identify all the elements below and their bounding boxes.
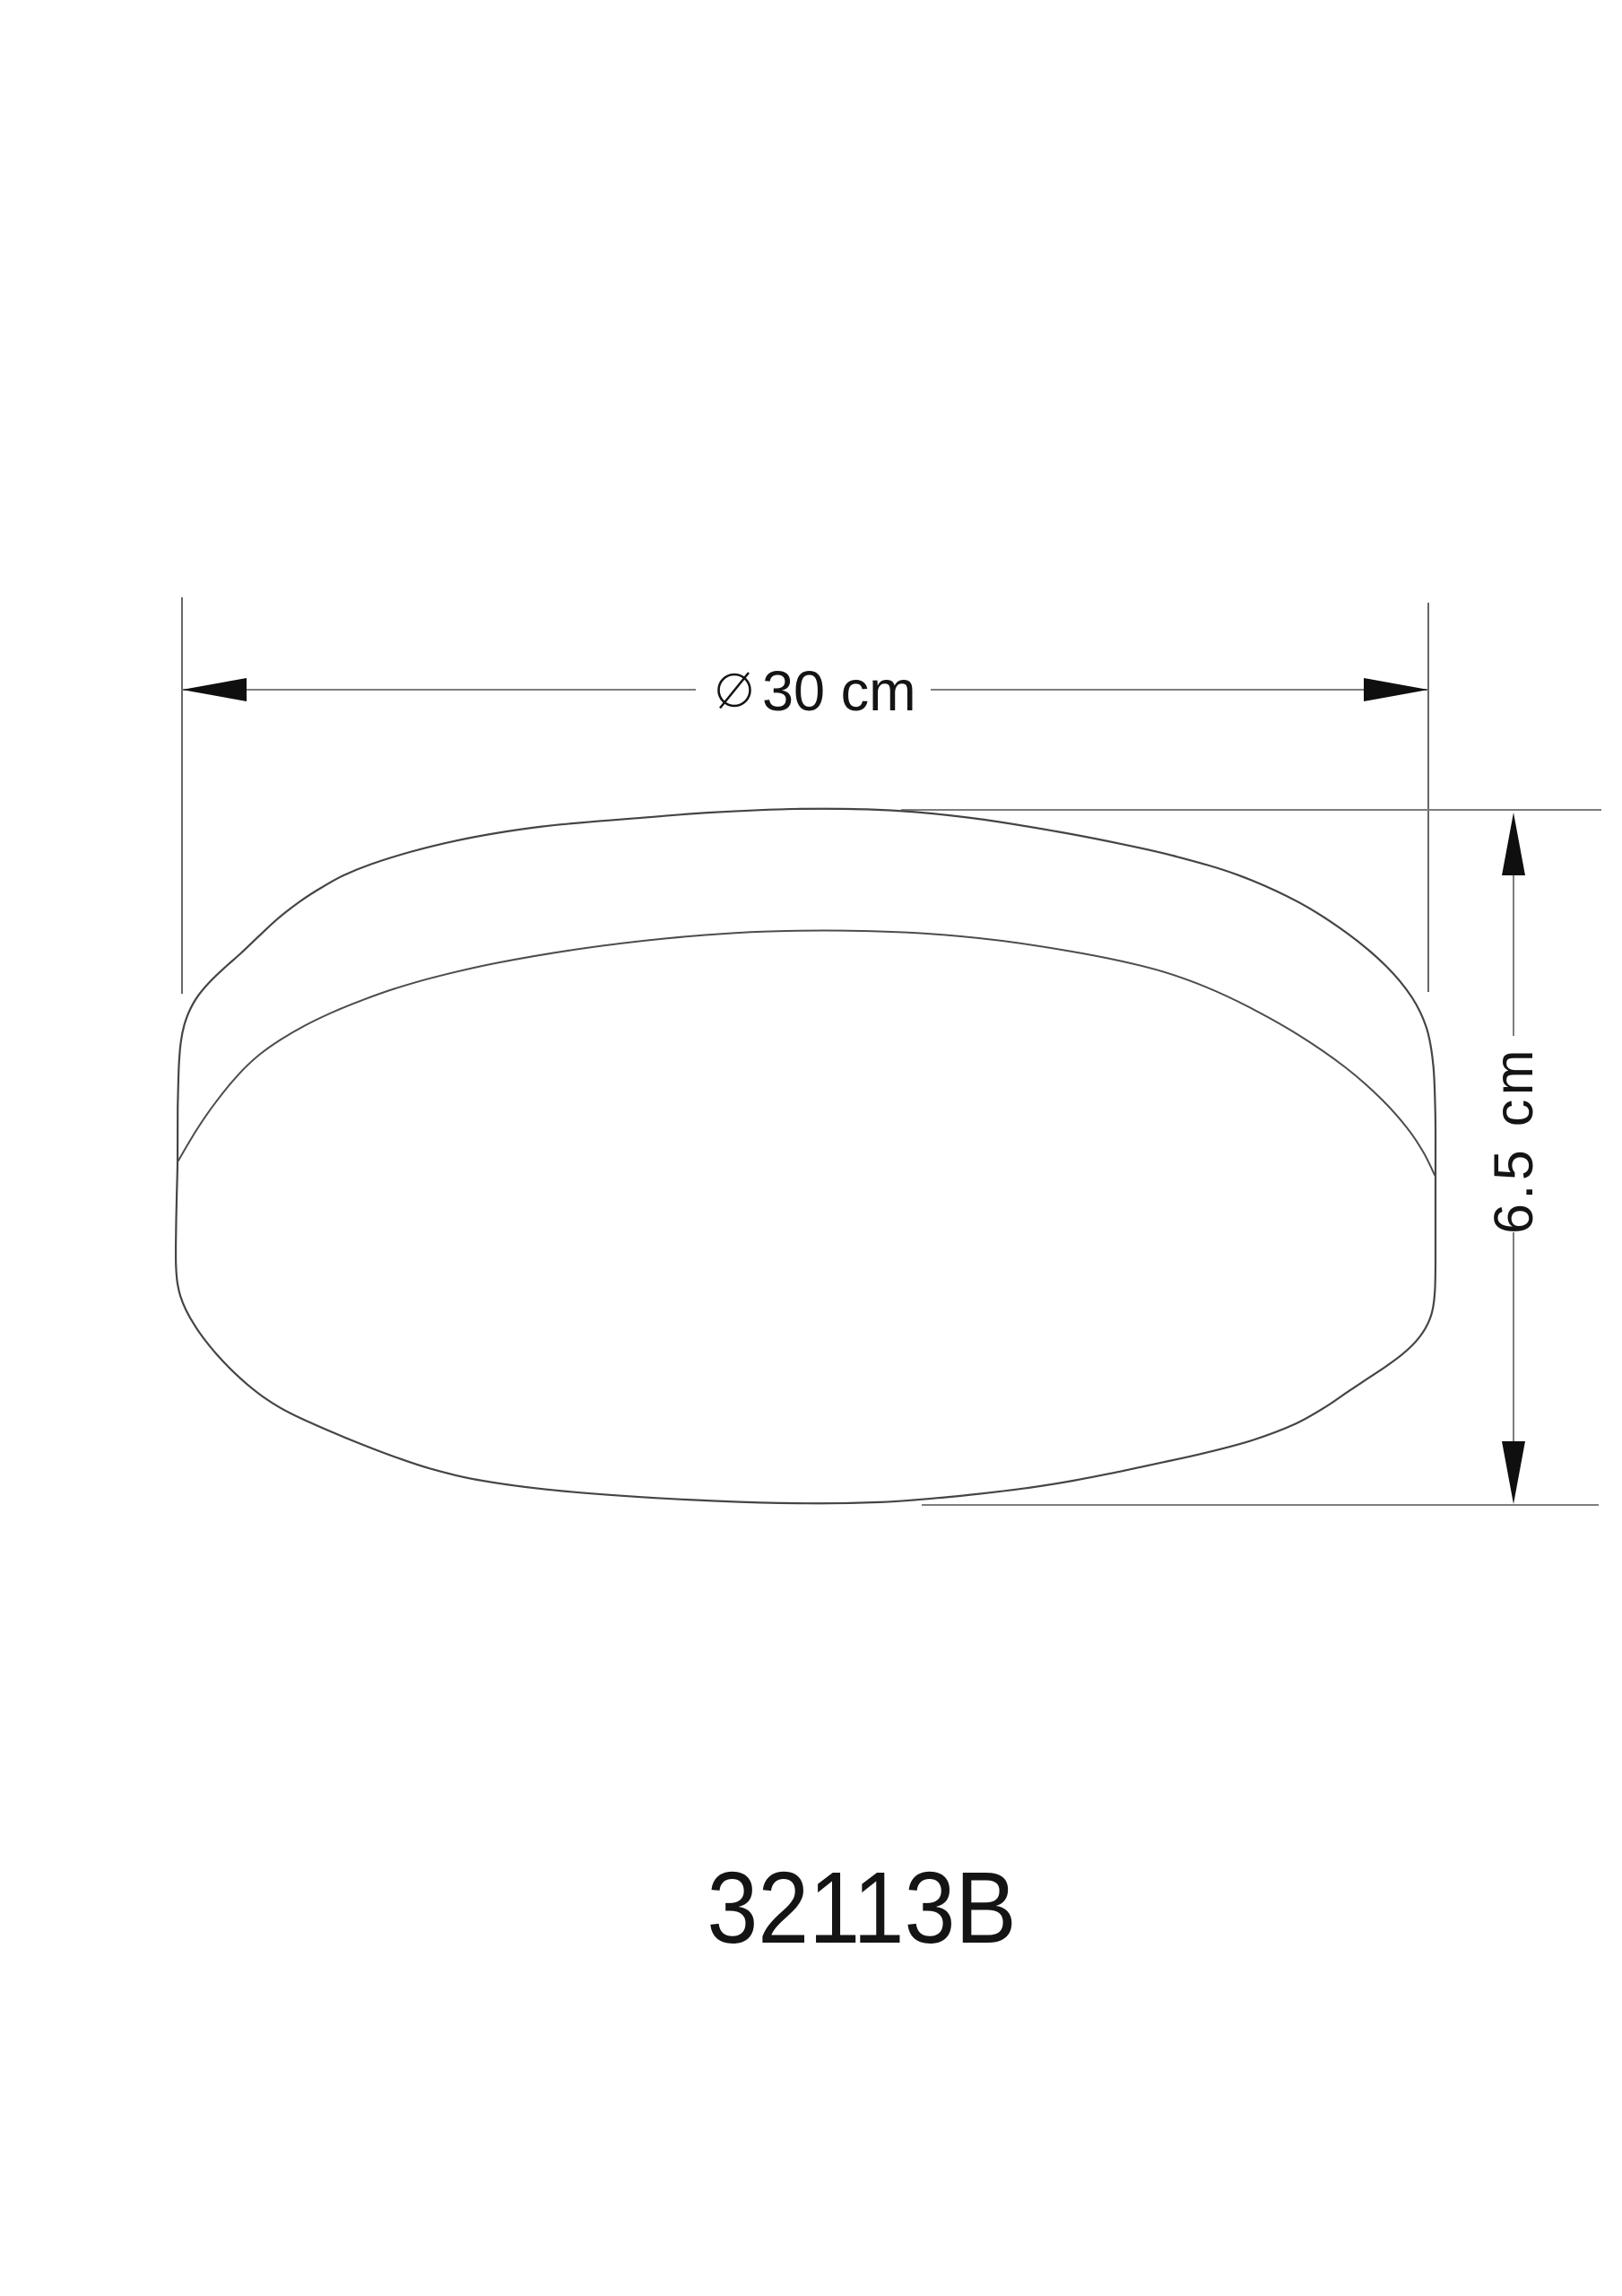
svg-text:6.5 cm: 6.5 cm: [1483, 1046, 1544, 1234]
svg-text:30 cm: 30 cm: [762, 660, 916, 723]
svg-text:32113B: 32113B: [707, 1850, 1016, 1964]
